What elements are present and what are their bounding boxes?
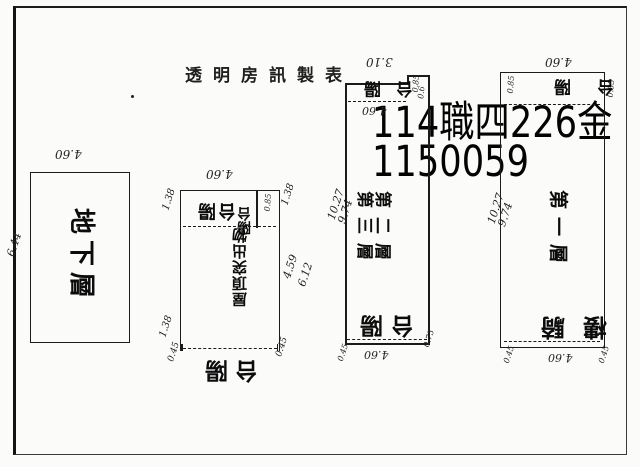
floor1-label: 第一層 [546, 190, 573, 271]
floor23-right-edge [428, 75, 430, 345]
floor23-balcony-bottom-label: 陽台 [352, 311, 414, 345]
roof-inner-dim: 0.85 [263, 193, 274, 212]
roof-band-divider [256, 190, 258, 228]
scanned-survey-sheet: 透明房訊製表 114職四226金 1150059 4.60 6.44 地下層 4… [0, 0, 640, 467]
roof-width-dim: 4.60 [206, 167, 233, 181]
roof-structure-label: 屋頂突出物 [229, 223, 250, 307]
floor23-bottom-dim: 4.60 [364, 348, 389, 361]
sheet-title: 透明房訊製表 [185, 61, 353, 86]
floor1-band-dashed-line [504, 104, 600, 105]
floor23-balcony-top-label: 陽台 [349, 78, 413, 103]
floor1-width-dim: 4.60 [545, 55, 572, 69]
basement-width-dim: 4.60 [55, 147, 82, 161]
roof-balcony-top-label: 陽台 [196, 199, 236, 225]
ink-dot [131, 95, 134, 98]
roof-balcony-bottom-label: 陽台 [198, 356, 258, 390]
floor1-bottom-dim: 4.60 [548, 351, 573, 364]
floor1-arcade-label: 騎樓 [523, 312, 607, 347]
floor23-top-dim: 3.10 [366, 55, 393, 69]
floor2-label: 第二層 [372, 191, 397, 269]
basement-label: 地下層 [65, 208, 102, 304]
floor23-step-dim-b: 0.6 [416, 86, 426, 99]
floor23-width-dim: 4.60 [362, 104, 387, 117]
roof-bottom-dashed-line [183, 348, 277, 349]
floor1-balcony-top-label: 陽台 [528, 76, 614, 101]
floor1-mark-left-dim: 0.85 [506, 75, 517, 94]
